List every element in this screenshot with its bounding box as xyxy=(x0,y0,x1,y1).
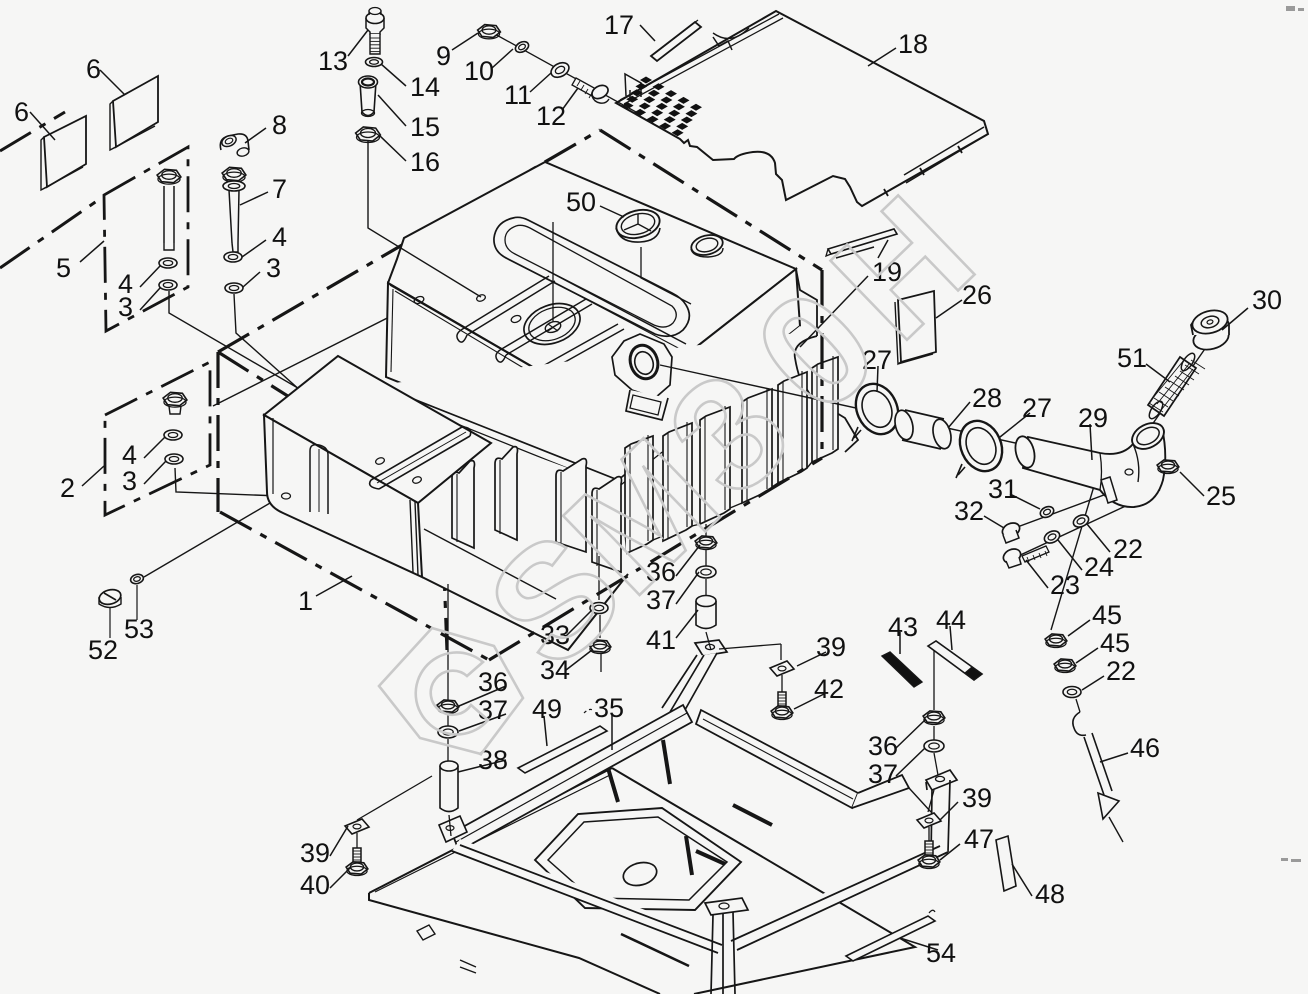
svg-text:36: 36 xyxy=(868,731,898,761)
svg-text:40: 40 xyxy=(300,870,330,900)
svg-text:39: 39 xyxy=(962,783,992,813)
svg-text:52: 52 xyxy=(88,635,118,665)
svg-text:54: 54 xyxy=(926,938,956,968)
svg-text:14: 14 xyxy=(410,72,440,102)
svg-text:46: 46 xyxy=(1130,733,1160,763)
svg-text:6: 6 xyxy=(86,54,101,84)
svg-text:18: 18 xyxy=(898,29,928,59)
svg-text:17: 17 xyxy=(604,10,634,40)
svg-text:31: 31 xyxy=(988,474,1018,504)
svg-text:35: 35 xyxy=(594,693,624,723)
svg-text:9: 9 xyxy=(436,41,451,71)
svg-text:50: 50 xyxy=(566,187,596,217)
svg-text:11: 11 xyxy=(504,80,532,110)
svg-text:23: 23 xyxy=(1050,570,1080,600)
svg-text:4: 4 xyxy=(272,222,287,252)
svg-text:24: 24 xyxy=(1084,552,1114,582)
svg-text:25: 25 xyxy=(1206,481,1236,511)
svg-text:29: 29 xyxy=(1078,403,1108,433)
svg-text:37: 37 xyxy=(868,759,898,789)
svg-text:43: 43 xyxy=(888,612,918,642)
svg-text:27: 27 xyxy=(1022,393,1052,423)
svg-text:8: 8 xyxy=(272,110,287,140)
svg-text:53: 53 xyxy=(124,614,154,644)
svg-text:37: 37 xyxy=(478,695,508,725)
svg-text:3: 3 xyxy=(266,253,281,283)
svg-text:12: 12 xyxy=(536,101,566,131)
svg-text:51: 51 xyxy=(1117,343,1147,373)
svg-text:22: 22 xyxy=(1106,656,1136,686)
svg-text:10: 10 xyxy=(464,56,494,86)
svg-text:13: 13 xyxy=(318,46,348,76)
svg-text:22: 22 xyxy=(1113,534,1143,564)
svg-text:45: 45 xyxy=(1100,628,1130,658)
svg-text:32: 32 xyxy=(954,496,984,526)
svg-text:39: 39 xyxy=(300,838,330,868)
svg-text:28: 28 xyxy=(972,383,1002,413)
svg-text:44: 44 xyxy=(936,605,966,635)
svg-text:6: 6 xyxy=(14,97,29,127)
svg-text:39: 39 xyxy=(816,632,846,662)
svg-text:36: 36 xyxy=(478,667,508,697)
svg-text:49: 49 xyxy=(532,694,562,724)
svg-text:30: 30 xyxy=(1252,285,1282,315)
svg-text:3: 3 xyxy=(118,292,133,322)
svg-text:1: 1 xyxy=(298,586,313,616)
svg-text:16: 16 xyxy=(410,147,440,177)
svg-text:48: 48 xyxy=(1035,879,1065,909)
svg-text:47: 47 xyxy=(964,824,994,854)
svg-text:45: 45 xyxy=(1092,600,1122,630)
svg-text:7: 7 xyxy=(272,174,287,204)
svg-text:42: 42 xyxy=(814,674,844,704)
svg-text:2: 2 xyxy=(60,473,75,503)
svg-text:5: 5 xyxy=(56,253,71,283)
svg-text:3: 3 xyxy=(122,466,137,496)
svg-text:38: 38 xyxy=(478,745,508,775)
svg-text:15: 15 xyxy=(410,112,440,142)
